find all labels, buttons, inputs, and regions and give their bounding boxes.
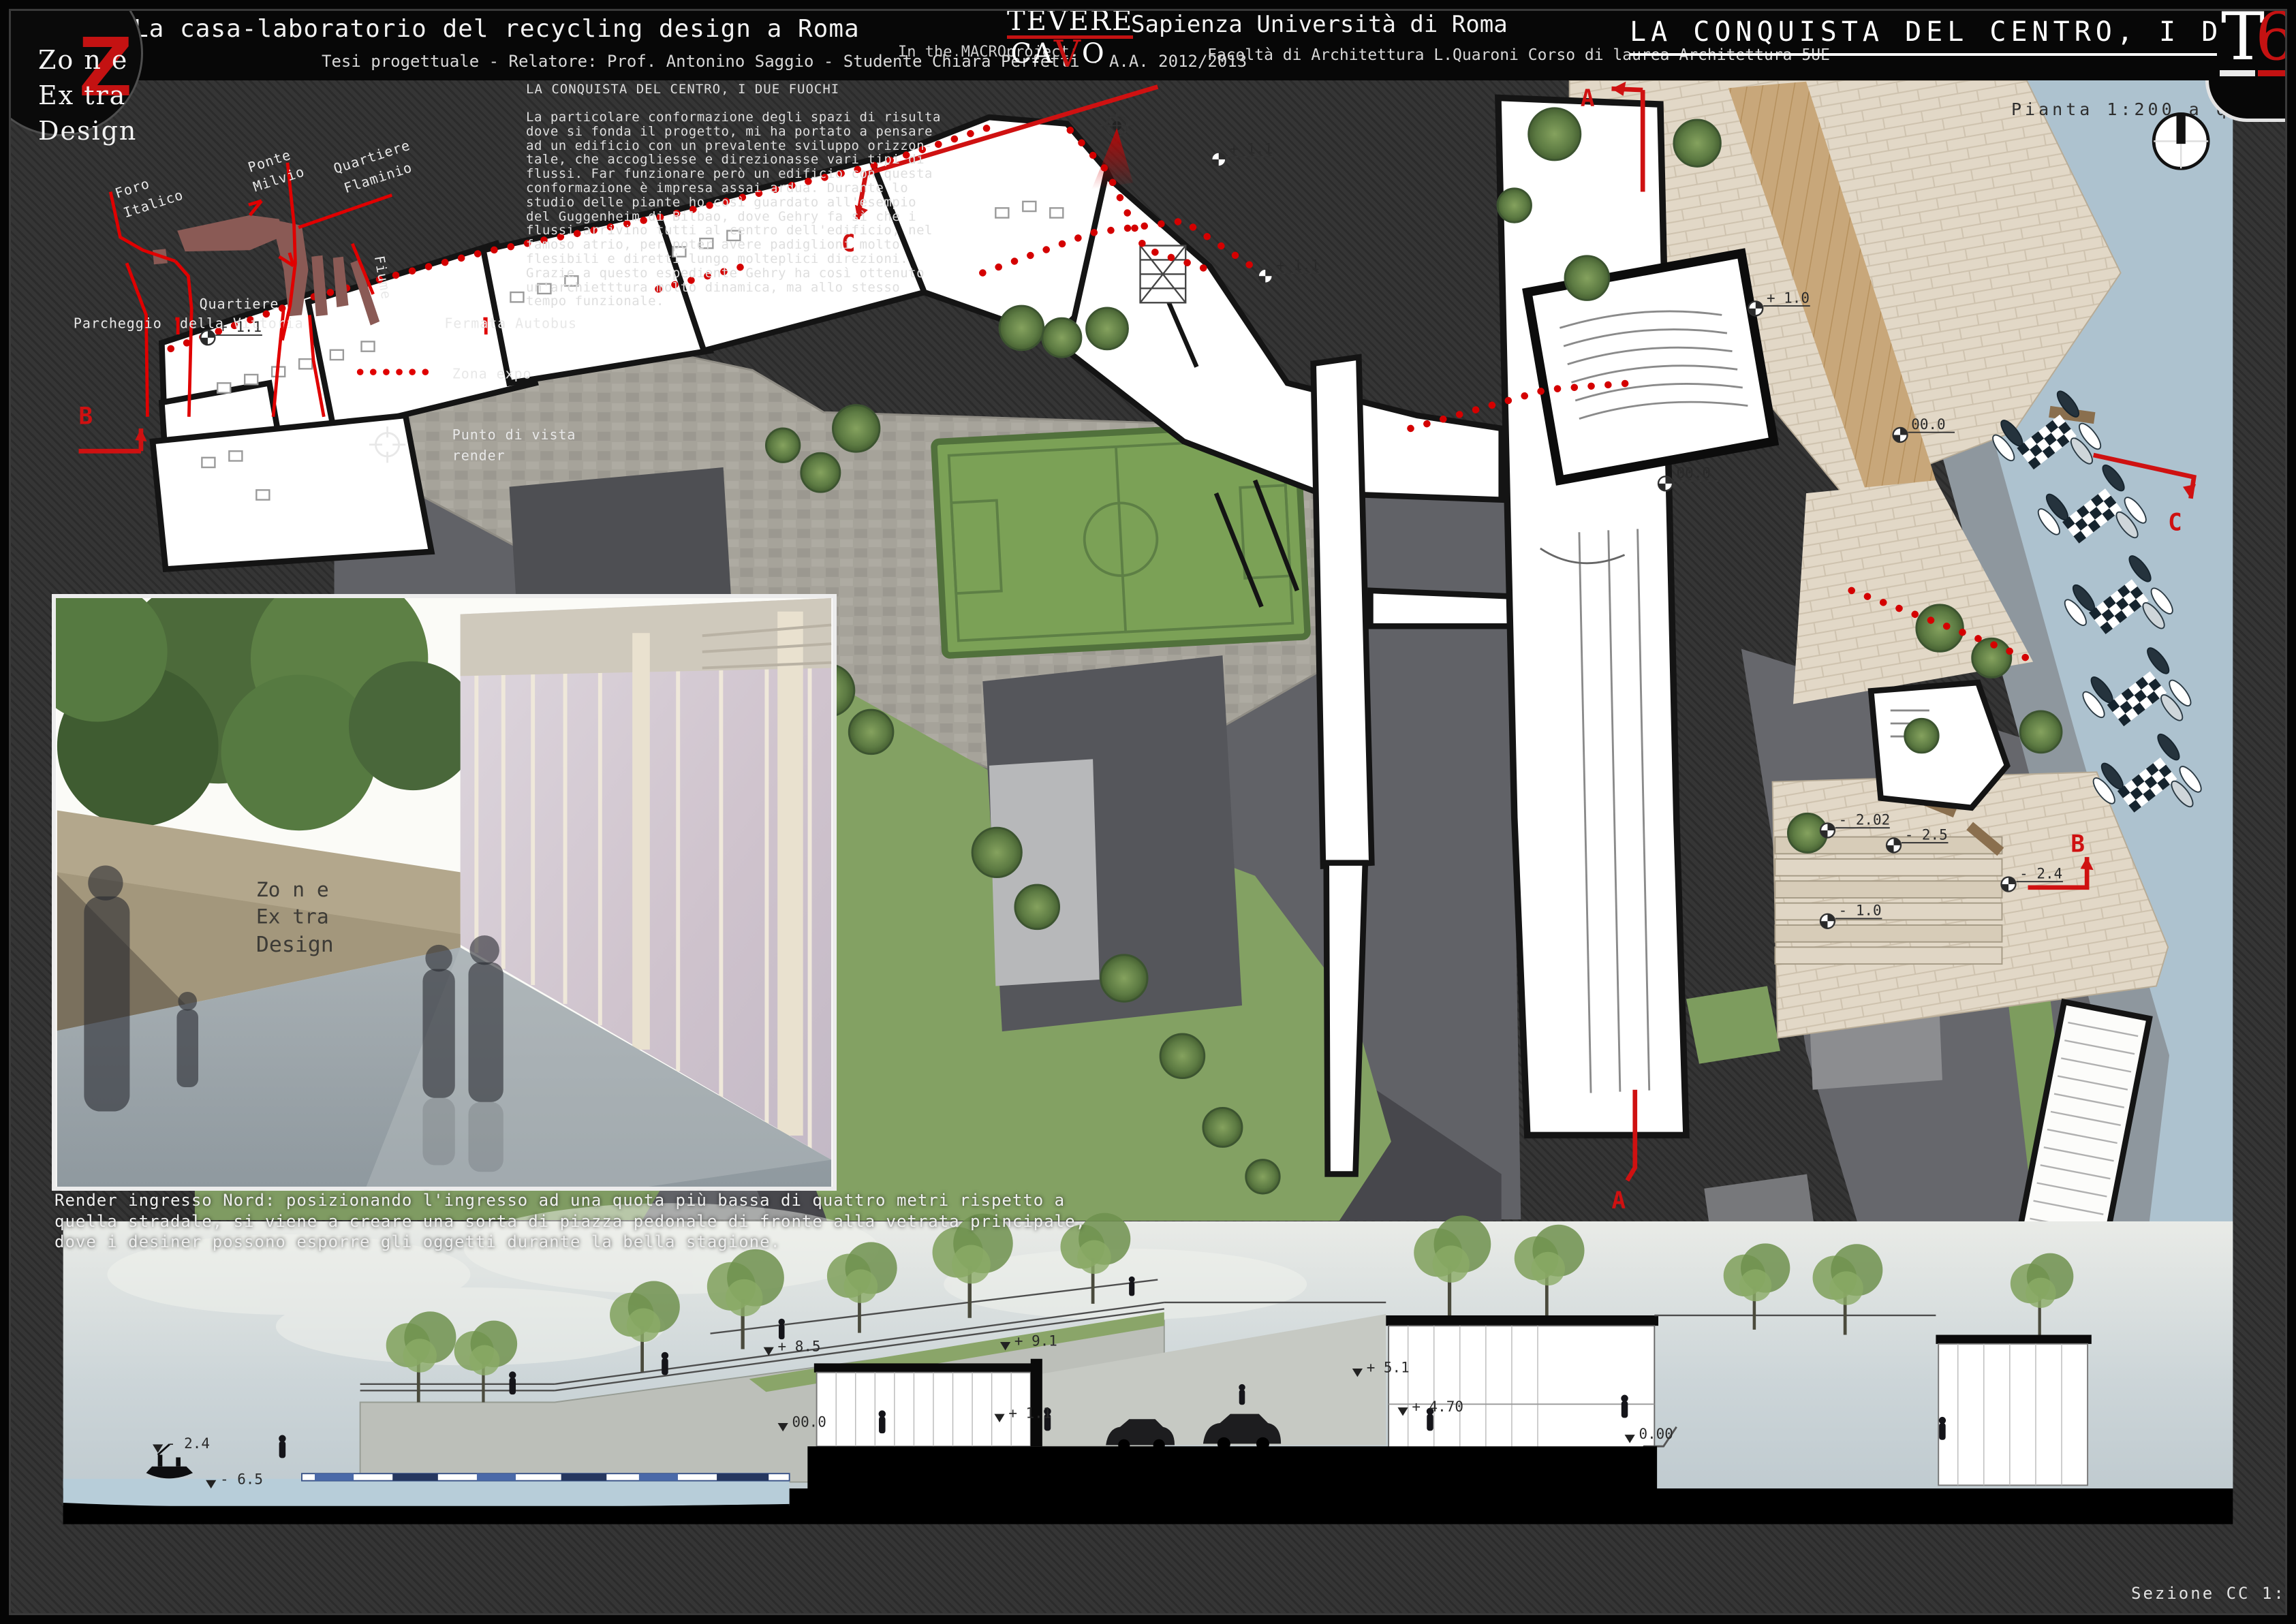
- svg-text:A: A: [1612, 1187, 1626, 1215]
- svg-text:Zo n e: Zo n e: [256, 878, 329, 901]
- description-block: LA CONQUISTA DEL CENTRO, I DUE FUOCHI La…: [526, 82, 928, 309]
- svg-text:Design: Design: [256, 933, 334, 957]
- university-name: Sapienza Università di Roma: [1131, 11, 1508, 38]
- legend-viewpoint-label: Punto di vista: [452, 426, 576, 443]
- tevere-cavo-logo: TEVERE CAVO: [1007, 7, 1109, 69]
- svg-text:B: B: [79, 403, 93, 430]
- svg-text:0.00: 0.00: [1639, 1426, 1673, 1442]
- svg-text:+ 1.1: + 1.1: [1008, 1405, 1051, 1421]
- t6-underline-red: [2258, 70, 2286, 76]
- render-inset: Zo n e Ex tra Design: [52, 594, 837, 1191]
- svg-text:+ 8.5: + 8.5: [778, 1338, 821, 1354]
- level-label: - 2.4: [2019, 865, 2062, 881]
- svg-text:+ 4.70: + 4.70: [1412, 1399, 1463, 1415]
- presentation-board: A A B C C: [0, 0, 2296, 1624]
- description-title: LA CONQUISTA DEL CENTRO, I DUE FUOCHI: [526, 82, 928, 97]
- level-label: + 1.1: [1230, 140, 1273, 157]
- description-body: La particolare conformazione degli spazi…: [526, 110, 928, 309]
- render-wall-logo: Zo n e Ex tra Design: [256, 878, 334, 957]
- minimap-label-parcheggio: Parcheggio: [74, 315, 162, 331]
- auditorium: [1527, 253, 1774, 480]
- section-marker-b-left: B: [79, 403, 147, 451]
- svg-text:C: C: [2168, 509, 2182, 536]
- section-caption: Sezione CC 1:200: [2131, 1584, 2296, 1603]
- stair-core: [1141, 246, 1186, 303]
- render-caption: Render ingresso Nord: posizionando l'ing…: [55, 1190, 1086, 1253]
- sheet-title: LA CONQUISTA DEL CENTRO, I DUE FUOCHI: [1630, 16, 2296, 56]
- cavo-wordmark: CAVO: [1007, 39, 1109, 69]
- section-water: [63, 1479, 790, 1506]
- svg-text:+ 5.1: + 5.1: [1367, 1360, 1410, 1376]
- t6-underline-white: [2220, 70, 2255, 76]
- svg-text:della Vittoria: della Vittoria: [180, 315, 304, 331]
- river-pavilion: [1871, 683, 2007, 808]
- header-bar: La casa-laboratorio del recycling design…: [0, 0, 2296, 80]
- page-title: La casa-laboratorio del recycling design…: [134, 15, 860, 43]
- gallery-building: [1498, 98, 1773, 1136]
- svg-text:- 6.5: - 6.5: [220, 1471, 263, 1487]
- render-viewpoint-icon: [1091, 109, 1134, 189]
- zone-extra-design-logo: Z Zo n e Ex tra Design: [38, 35, 168, 151]
- svg-text:Ex tra: Ex tra: [256, 905, 329, 928]
- svg-text:B: B: [2070, 830, 2085, 858]
- t6-number: 6: [2255, 0, 2296, 75]
- svg-text:+ 9.1: + 9.1: [1014, 1333, 1057, 1349]
- svg-text:A: A: [1581, 85, 1595, 112]
- level-label: 00.0: [1677, 465, 1711, 481]
- svg-text:00.0: 00.0: [792, 1414, 826, 1431]
- level-label: - 2.02: [1839, 811, 1891, 828]
- legend-zona-expo-label: Zona expo: [452, 366, 532, 382]
- level-label: + 1.0: [1767, 290, 1810, 306]
- svg-text:render: render: [452, 448, 506, 464]
- level-label: + 1.1: [1276, 257, 1319, 274]
- level-label: - 2.5: [1905, 826, 1948, 843]
- level-label: - 1.0: [1839, 903, 1882, 919]
- north-indicator-icon: [2154, 114, 2208, 168]
- sheet-tag-t6: T 6: [2217, 0, 2288, 80]
- level-label: 00.0: [1911, 416, 1945, 433]
- svg-text:- 2.4: - 2.4: [167, 1435, 210, 1452]
- floating-dock: [302, 1473, 790, 1480]
- render-image: Zo n e Ex tra Design: [56, 598, 833, 1187]
- red-v-glyph: V: [1054, 33, 1082, 76]
- minimap-label-fermata: Fermata Autobus: [444, 315, 577, 331]
- minimap-label-vittoria: Quartiere: [200, 296, 279, 312]
